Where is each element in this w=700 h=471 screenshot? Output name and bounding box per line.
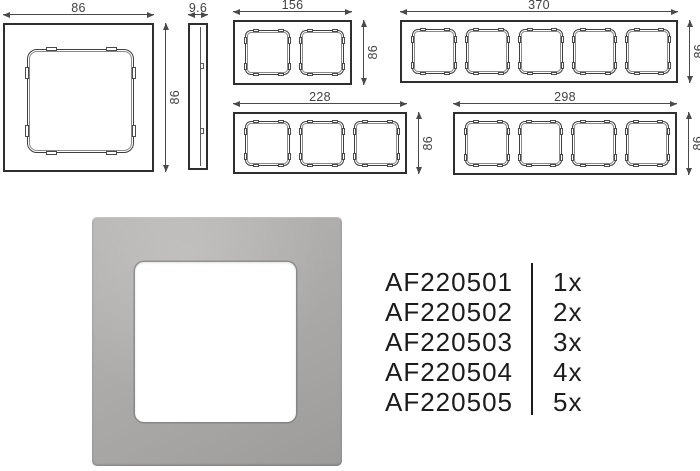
part-row: AF2205011x bbox=[385, 267, 582, 297]
clip-tab bbox=[332, 164, 338, 167]
clip-tab bbox=[473, 164, 479, 167]
clip-tab bbox=[342, 63, 345, 70]
frame-window bbox=[572, 121, 616, 166]
part-quantity: 4x bbox=[553, 357, 582, 387]
dimension-top: 228 bbox=[233, 91, 407, 112]
dimension-label: 86 bbox=[366, 45, 380, 60]
clip-tab bbox=[454, 62, 457, 69]
clip-tab bbox=[561, 62, 564, 69]
clip-tab bbox=[634, 28, 640, 31]
clip-tab bbox=[387, 120, 393, 123]
clip-tab bbox=[473, 120, 479, 123]
clip-tab bbox=[288, 153, 291, 160]
clip-tab bbox=[464, 154, 467, 161]
clip-tab bbox=[362, 120, 368, 123]
clip-tab bbox=[253, 29, 259, 32]
dimension-label: 86 bbox=[691, 136, 700, 151]
clip-tab bbox=[464, 128, 467, 135]
dimension-label: 370 bbox=[528, 0, 550, 11]
dimension-label: 86 bbox=[168, 90, 182, 105]
clip-tab bbox=[551, 28, 557, 31]
part-sku: AF220503 bbox=[385, 327, 533, 357]
dimension-arrow-left-icon bbox=[3, 12, 10, 18]
frame-3gang-front bbox=[233, 112, 407, 174]
clip-tab bbox=[527, 72, 533, 75]
parts-list: AF2205011xAF2205022xAF2205033xAF2205044x… bbox=[385, 267, 582, 417]
clip-tab bbox=[605, 72, 611, 75]
clip-tab bbox=[444, 72, 450, 75]
clip-tab bbox=[353, 153, 356, 160]
clip-tab bbox=[299, 153, 302, 160]
clip-tab bbox=[132, 125, 136, 137]
frame-window bbox=[245, 30, 290, 75]
clip-tab bbox=[551, 72, 557, 75]
side-profile-notch bbox=[200, 128, 204, 134]
dimension-arrow-right-icon bbox=[400, 101, 407, 107]
dimension-right: 86 bbox=[411, 112, 435, 174]
dimension-line bbox=[689, 20, 690, 83]
clip-tab bbox=[625, 36, 628, 43]
clip-tab bbox=[526, 164, 532, 167]
clip-tab bbox=[332, 29, 338, 32]
clip-tab bbox=[25, 125, 29, 137]
frame-window-inner bbox=[574, 123, 614, 164]
clip-tab bbox=[658, 28, 664, 31]
frame-window bbox=[300, 30, 345, 75]
dimension-label: 86 bbox=[71, 2, 86, 14]
product-photo bbox=[92, 217, 342, 466]
clip-tab bbox=[571, 128, 574, 135]
frame-window-inner bbox=[302, 32, 343, 73]
dimension-right: 86 bbox=[356, 20, 380, 85]
clip-tab bbox=[411, 36, 414, 43]
clip-tab bbox=[420, 28, 426, 31]
clip-tab bbox=[307, 164, 313, 167]
clip-tab bbox=[580, 28, 586, 31]
datasheet: 86869.615686370862288629886 AF2205011xAF… bbox=[0, 0, 700, 471]
clip-tab bbox=[332, 73, 338, 76]
dimension-label: 156 bbox=[282, 0, 304, 11]
dimension-top: 298 bbox=[453, 91, 677, 112]
dimension-right: 86 bbox=[158, 23, 182, 172]
frame-1gang-front bbox=[3, 23, 154, 172]
frame-window bbox=[466, 29, 510, 74]
clip-tab bbox=[244, 63, 247, 70]
clip-tab bbox=[497, 164, 503, 167]
dimension-arrow-left-icon bbox=[453, 101, 460, 107]
part-sku: AF220502 bbox=[385, 297, 533, 327]
clip-tab bbox=[299, 128, 302, 135]
clip-tab bbox=[605, 28, 611, 31]
dimension-label-wrap: 86 bbox=[692, 20, 700, 83]
clip-tab bbox=[507, 128, 510, 135]
dimension-line bbox=[3, 14, 154, 15]
clip-tab bbox=[634, 72, 640, 75]
clip-tab bbox=[625, 128, 628, 135]
dimension-label-wrap: 86 bbox=[168, 23, 182, 172]
frame-window-inner bbox=[468, 31, 508, 72]
clip-tab bbox=[507, 36, 510, 43]
part-sku: AF220501 bbox=[385, 267, 533, 297]
clip-tab bbox=[571, 154, 574, 161]
frame-window-inner bbox=[575, 31, 615, 72]
clip-tab bbox=[625, 62, 628, 69]
clip-tab bbox=[332, 120, 338, 123]
dimension-arrow-right-icon bbox=[147, 12, 154, 18]
dimension-top: 370 bbox=[400, 0, 678, 20]
clip-tab bbox=[465, 36, 468, 43]
clip-tab bbox=[497, 120, 503, 123]
clip-tab bbox=[658, 72, 664, 75]
clip-tab bbox=[307, 73, 313, 76]
dimension-line bbox=[165, 23, 166, 172]
part-sku: AF220504 bbox=[385, 357, 533, 387]
clip-tab bbox=[550, 164, 556, 167]
clip-tab bbox=[604, 120, 610, 123]
frame-window-inner bbox=[302, 123, 343, 164]
frame-window bbox=[626, 29, 670, 74]
clip-tab bbox=[518, 62, 521, 69]
clip-tab bbox=[411, 62, 414, 69]
clip-tab bbox=[614, 128, 617, 135]
clip-tab bbox=[299, 63, 302, 70]
clip-tab bbox=[518, 36, 521, 43]
clip-tab bbox=[278, 73, 284, 76]
dimension-arrow-left-icon bbox=[233, 101, 240, 107]
clip-tab bbox=[278, 120, 284, 123]
part-quantity: 2x bbox=[553, 297, 582, 327]
frame-5gang-front bbox=[400, 20, 678, 83]
clip-tab bbox=[633, 120, 639, 123]
dimension-label: 86 bbox=[421, 136, 435, 151]
frame-window-inner bbox=[247, 123, 288, 164]
clip-tab bbox=[397, 128, 400, 135]
frame-window-inner bbox=[628, 123, 668, 164]
clip-tab bbox=[518, 128, 521, 135]
part-row: AF2205044x bbox=[385, 357, 582, 387]
frame-window bbox=[354, 121, 399, 166]
dimension-arrow-right-icon bbox=[345, 9, 352, 15]
part-row: AF2205055x bbox=[385, 387, 582, 417]
clip-tab bbox=[667, 154, 670, 161]
frame-window-inner bbox=[521, 123, 561, 164]
dimension-label: 228 bbox=[309, 91, 331, 103]
clip-tab bbox=[580, 164, 586, 167]
frame-window bbox=[27, 49, 134, 153]
dimension-top: 156 bbox=[233, 0, 352, 20]
clip-tab bbox=[25, 67, 29, 79]
clip-tab bbox=[342, 153, 345, 160]
dimension-line bbox=[233, 11, 352, 12]
frame-window-inner bbox=[247, 32, 288, 73]
part-quantity: 3x bbox=[553, 327, 582, 357]
clip-tab bbox=[518, 154, 521, 161]
clip-tab bbox=[657, 164, 663, 167]
dimension-line bbox=[400, 11, 678, 12]
clip-tab bbox=[498, 28, 504, 31]
clip-tab bbox=[625, 154, 628, 161]
clip-tab bbox=[420, 72, 426, 75]
clip-tab bbox=[473, 28, 479, 31]
clip-tab bbox=[253, 73, 259, 76]
dimension-top: 9.6 bbox=[188, 2, 208, 23]
clip-tab bbox=[668, 36, 671, 43]
clip-tab bbox=[244, 37, 247, 44]
clip-tab bbox=[454, 36, 457, 43]
clip-tab bbox=[288, 128, 291, 135]
clip-tab bbox=[465, 62, 468, 69]
clip-tab bbox=[614, 62, 617, 69]
clip-tab bbox=[561, 36, 564, 43]
clip-tab bbox=[507, 154, 510, 161]
clip-tab bbox=[498, 72, 504, 75]
clip-tab bbox=[667, 128, 670, 135]
dimension-label: 298 bbox=[554, 91, 576, 103]
clip-tab bbox=[132, 67, 136, 79]
clip-tab bbox=[668, 62, 671, 69]
clip-tab bbox=[106, 47, 117, 51]
clip-tab bbox=[46, 151, 57, 155]
frame-window-inner bbox=[467, 123, 507, 164]
dimension-arrow-left-icon bbox=[400, 9, 407, 15]
frame-window-inner bbox=[628, 31, 668, 72]
clip-tab bbox=[278, 29, 284, 32]
clip-tab bbox=[244, 128, 247, 135]
frame-window bbox=[245, 121, 290, 166]
clip-tab bbox=[307, 120, 313, 123]
dimension-label-wrap: 86 bbox=[366, 20, 380, 85]
photo-cutout bbox=[135, 262, 296, 422]
dimension-line bbox=[233, 103, 407, 104]
frame-window bbox=[573, 29, 617, 74]
dimension-line bbox=[453, 103, 677, 104]
dimension-arrow-left-icon bbox=[233, 9, 240, 15]
clip-tab bbox=[560, 154, 563, 161]
side-profile-notch bbox=[200, 63, 204, 69]
dimension-arrow-right-icon bbox=[201, 12, 208, 18]
clip-tab bbox=[353, 128, 356, 135]
clip-tab bbox=[580, 120, 586, 123]
clip-tab bbox=[560, 128, 563, 135]
clip-tab bbox=[473, 72, 479, 75]
part-quantity: 1x bbox=[553, 267, 582, 297]
clip-tab bbox=[633, 164, 639, 167]
side-profile-inner-line bbox=[200, 27, 203, 166]
clip-tab bbox=[307, 29, 313, 32]
frame-window bbox=[412, 29, 456, 74]
clip-tab bbox=[299, 37, 302, 44]
frame-4gang-front bbox=[453, 112, 677, 175]
dimension-arrow-right-icon bbox=[671, 9, 678, 15]
dimension-line bbox=[418, 112, 419, 174]
clip-tab bbox=[507, 62, 510, 69]
frame-window bbox=[465, 121, 509, 166]
dimension-label: 86 bbox=[692, 44, 700, 59]
clip-tab bbox=[342, 37, 345, 44]
clip-tab bbox=[342, 128, 345, 135]
clip-tab bbox=[526, 120, 532, 123]
dimension-top: 86 bbox=[3, 2, 154, 23]
frame-window-inner bbox=[29, 51, 132, 151]
frame-window-inner bbox=[414, 31, 454, 72]
clip-tab bbox=[46, 47, 57, 51]
clip-tab bbox=[580, 72, 586, 75]
clip-tab bbox=[362, 164, 368, 167]
frame-window bbox=[626, 121, 670, 166]
frame-window-inner bbox=[521, 31, 561, 72]
parts-divider-line bbox=[531, 263, 533, 415]
clip-tab bbox=[253, 120, 259, 123]
clip-tab bbox=[572, 62, 575, 69]
part-row: AF2205033x bbox=[385, 327, 582, 357]
clip-tab bbox=[527, 28, 533, 31]
clip-tab bbox=[444, 28, 450, 31]
dimension-line bbox=[363, 20, 364, 85]
dimension-arrow-right-icon bbox=[670, 101, 677, 107]
dimension-label-wrap: 86 bbox=[691, 112, 700, 175]
clip-tab bbox=[657, 120, 663, 123]
part-sku: AF220505 bbox=[385, 387, 533, 417]
clip-tab bbox=[278, 164, 284, 167]
dimension-line bbox=[688, 112, 689, 175]
clip-tab bbox=[387, 164, 393, 167]
frame-window-inner bbox=[356, 123, 397, 164]
clip-tab bbox=[397, 153, 400, 160]
clip-tab bbox=[288, 37, 291, 44]
clip-tab bbox=[572, 36, 575, 43]
dimension-label-wrap: 86 bbox=[421, 112, 435, 174]
clip-tab bbox=[550, 120, 556, 123]
dimension-right: 86 bbox=[682, 20, 700, 83]
clip-tab bbox=[614, 154, 617, 161]
frame-window bbox=[519, 121, 563, 166]
frame-side-profile bbox=[188, 23, 208, 170]
frame-window bbox=[300, 121, 345, 166]
dimension-arrow-left-icon bbox=[188, 12, 195, 18]
frame-2gang-front bbox=[233, 20, 352, 85]
part-quantity: 5x bbox=[553, 387, 582, 417]
part-row: AF2205022x bbox=[385, 297, 582, 327]
frame-window bbox=[519, 29, 563, 74]
clip-tab bbox=[604, 164, 610, 167]
clip-tab bbox=[244, 153, 247, 160]
clip-tab bbox=[106, 151, 117, 155]
clip-tab bbox=[288, 63, 291, 70]
clip-tab bbox=[253, 164, 259, 167]
clip-tab bbox=[614, 36, 617, 43]
dimension-right: 86 bbox=[681, 112, 700, 175]
